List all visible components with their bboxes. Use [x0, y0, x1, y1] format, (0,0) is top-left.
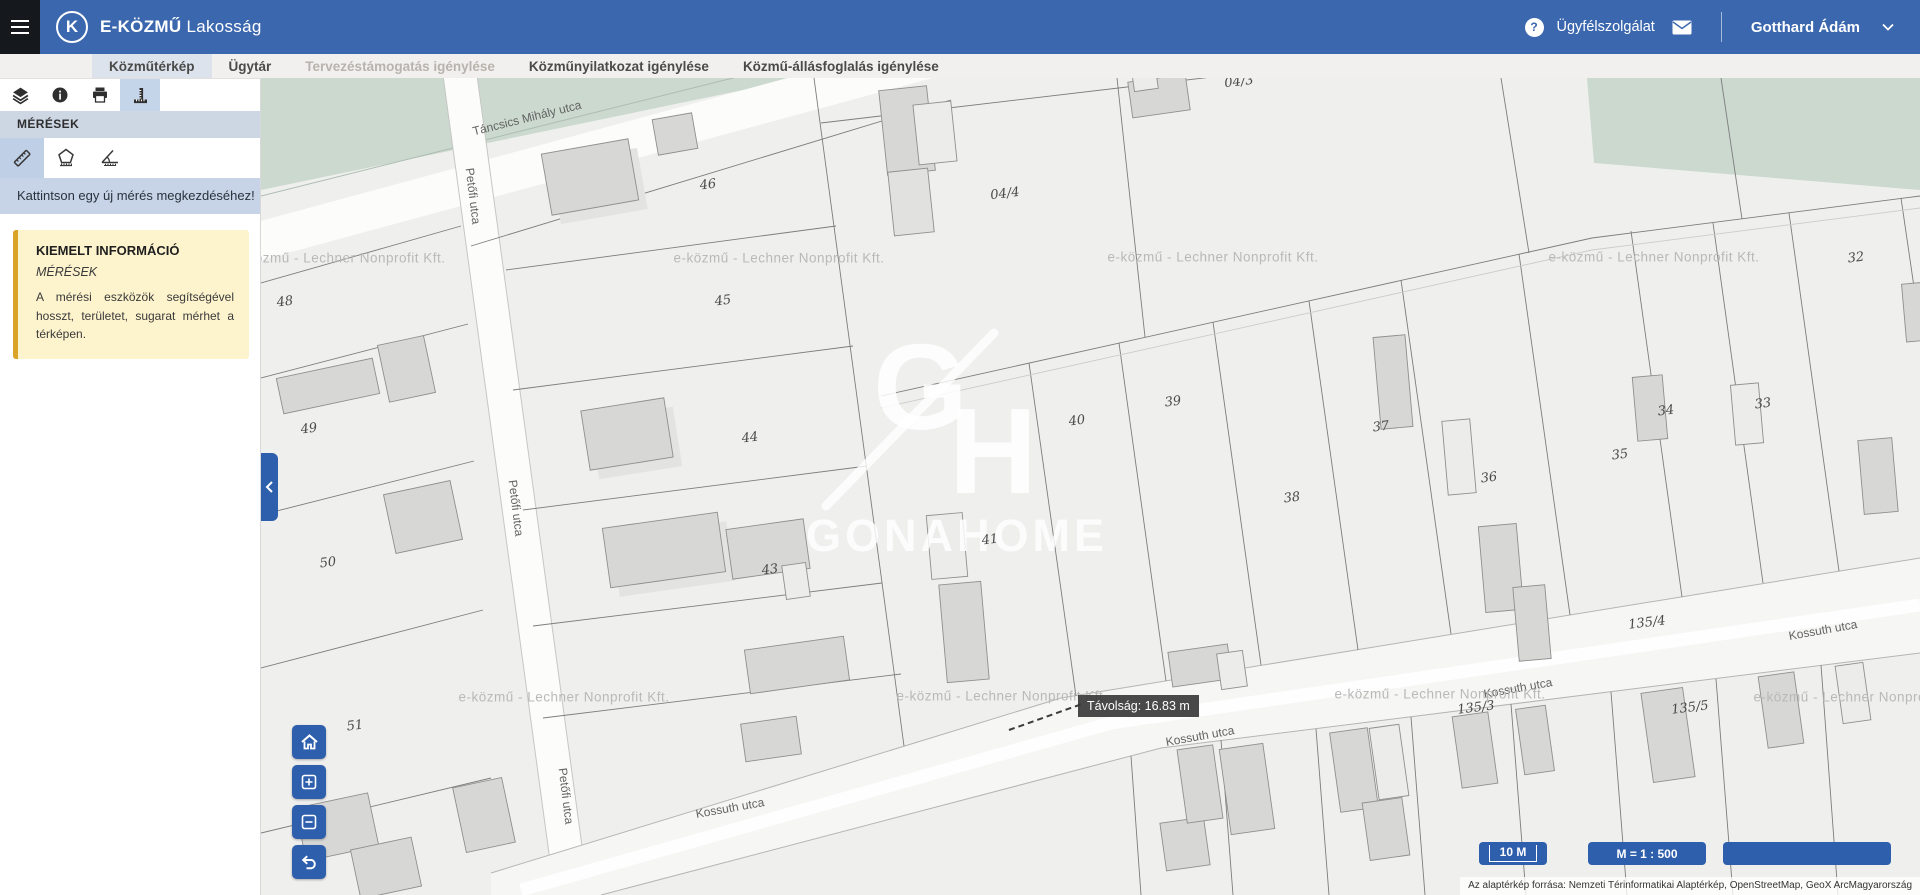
app-title: E-KÖZMŰLakosság: [100, 17, 262, 37]
info-box-body: A mérési eszközök segítségével hosszt, t…: [36, 288, 234, 344]
main-tabbar: Közműtérkép Ügytár Tervezéstámogatás igé…: [0, 54, 1920, 79]
layers-icon[interactable]: [0, 79, 40, 111]
app-header: K E-KÖZMŰLakosság ? Ügyfélszolgálat Gott…: [0, 0, 1920, 54]
tab-kozmunyilatkozat[interactable]: Közműnyilatkozat igénylése: [512, 54, 726, 78]
tab-kozmu-allasfoglalas[interactable]: Közmű-állásfoglalás igénylése: [726, 54, 956, 78]
app-logo: K: [56, 11, 88, 43]
hamburger-menu-button[interactable]: [0, 0, 40, 54]
zoom-out-button[interactable]: [292, 805, 326, 839]
map-toolbar: [0, 79, 260, 111]
scale-bar: 10 M: [1479, 842, 1547, 865]
map-attribution: Az alaptérkép forrása: Nemzeti Térinform…: [1460, 877, 1920, 895]
info-box-title: KIEMELT INFORMÁCIÓ: [36, 243, 234, 258]
help-icon[interactable]: ?: [1525, 18, 1544, 37]
scale-ratio: M = 1 : 500: [1588, 842, 1706, 865]
page: K E-KÖZMŰLakosság ? Ügyfélszolgálat Gott…: [0, 0, 1920, 895]
zoom-in-button[interactable]: [292, 765, 326, 799]
app-name: E-KÖZMŰ: [100, 17, 181, 36]
app-suffix: Lakosság: [186, 17, 261, 36]
measure-hint: Kattintson egy új mérés megkezdéséhez!: [0, 178, 260, 214]
info-icon[interactable]: [40, 79, 80, 111]
user-menu[interactable]: Gotthard Ádám: [1751, 19, 1860, 36]
measure-area-tool[interactable]: [44, 138, 88, 178]
left-sidebar: MÉRÉSEK: [0, 79, 261, 895]
measure-tools: [0, 138, 260, 178]
measure-radius-tool[interactable]: [88, 138, 132, 178]
scale-bar-label: 10 M: [1489, 845, 1538, 862]
panel-title: MÉRÉSEK: [0, 111, 260, 138]
support-link[interactable]: Ügyfélszolgálat: [1557, 19, 1655, 35]
header-right: ? Ügyfélszolgálat Gotthard Ádám: [1525, 12, 1920, 42]
home-button[interactable]: [292, 725, 326, 759]
info-box-subtitle: MÉRÉSEK: [36, 265, 234, 279]
map-base-layer: [261, 78, 1920, 895]
mail-icon[interactable]: [1672, 20, 1692, 35]
tab-kozmuterkep[interactable]: Közműtérkép: [92, 54, 212, 78]
scale-extra-pill: [1723, 842, 1891, 865]
highlighted-info-box: KIEMELT INFORMÁCIÓ MÉRÉSEK A mérési eszk…: [13, 230, 249, 359]
undo-button[interactable]: [292, 845, 326, 879]
logo-letter: K: [66, 17, 78, 37]
divider: [1721, 12, 1722, 42]
chevron-down-icon[interactable]: [1882, 23, 1894, 31]
measure-icon[interactable]: [120, 79, 160, 111]
map-canvas[interactable]: G H GONAHOME Táncsics Mihály utcaPetőfi …: [261, 78, 1920, 895]
distance-tooltip: Távolság: 16.83 m: [1078, 695, 1199, 717]
tab-ugytar[interactable]: Ügytár: [212, 54, 289, 78]
tab-tervezestamogatas[interactable]: Tervezéstámogatás igénylése: [288, 54, 512, 78]
measure-length-tool[interactable]: [0, 138, 44, 178]
sidebar-collapse-button[interactable]: [261, 453, 278, 521]
print-icon[interactable]: [80, 79, 120, 111]
